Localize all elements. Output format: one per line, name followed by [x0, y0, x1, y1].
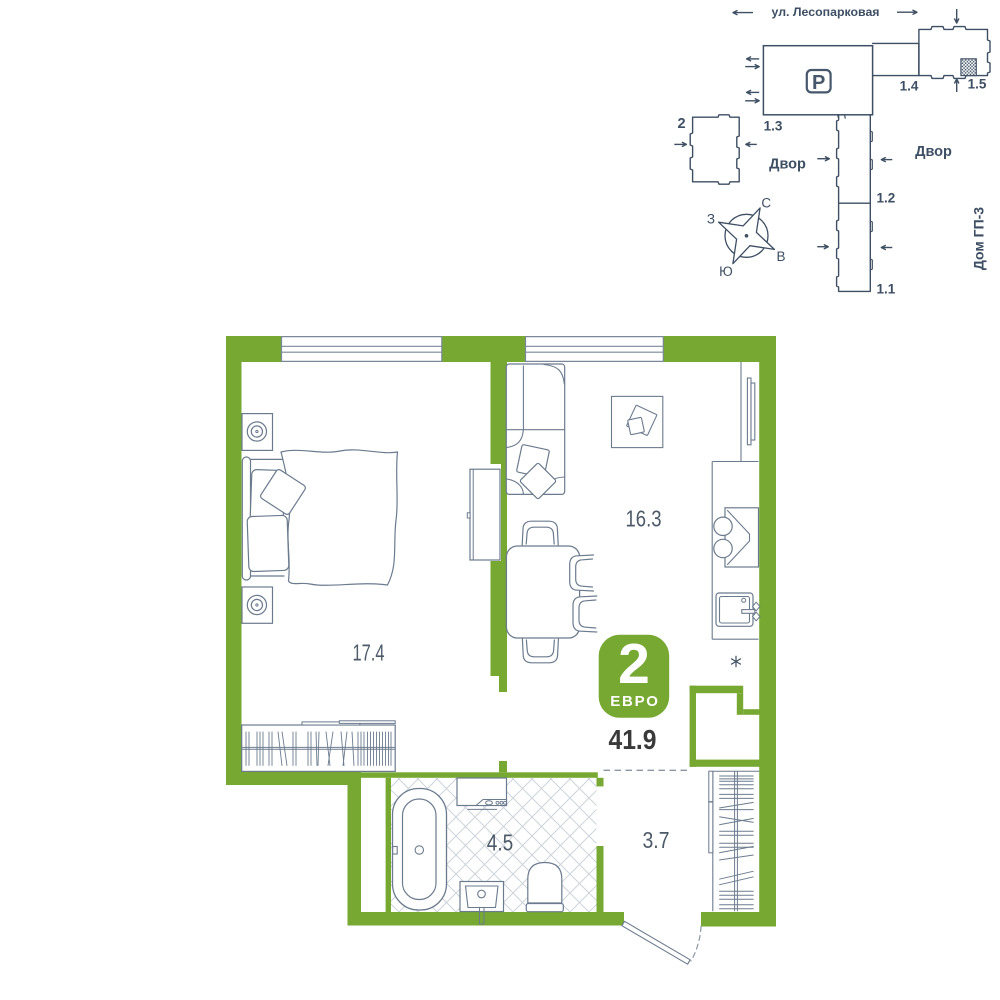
svg-text:41.9: 41.9 [609, 724, 657, 755]
svg-text:2: 2 [618, 632, 650, 696]
svg-text:2: 2 [678, 116, 686, 132]
svg-text:ЕВРО: ЕВРО [610, 693, 660, 710]
svg-text:1.2: 1.2 [877, 191, 896, 206]
svg-text:Двор: Двор [915, 144, 952, 160]
svg-text:ул. Лесопарковая: ул. Лесопарковая [772, 5, 880, 19]
svg-text:В: В [776, 249, 785, 264]
svg-text:1.1: 1.1 [877, 281, 896, 296]
svg-text:Двор: Двор [769, 156, 806, 172]
svg-text:3.7: 3.7 [643, 827, 670, 853]
svg-text:4.5: 4.5 [487, 829, 514, 855]
svg-text:1.3: 1.3 [764, 119, 783, 134]
svg-text:16.3: 16.3 [626, 505, 662, 531]
svg-text:1.4: 1.4 [900, 79, 919, 94]
svg-text:С: С [761, 196, 771, 211]
svg-text:17.4: 17.4 [353, 639, 385, 665]
svg-text:Ю: Ю [719, 264, 733, 279]
svg-text:P: P [812, 72, 825, 94]
svg-text:Дом ГП-3: Дом ГП-3 [971, 207, 987, 270]
svg-text:З: З [707, 212, 715, 227]
svg-text:1.5: 1.5 [968, 77, 987, 92]
